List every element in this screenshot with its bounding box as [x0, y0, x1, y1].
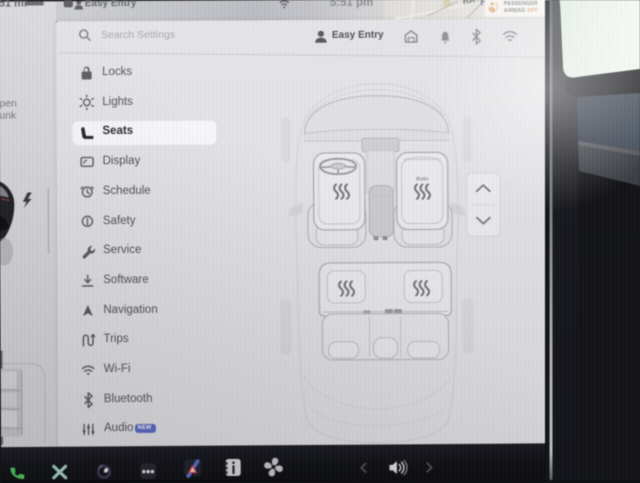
svg-text:Auto: Auto — [416, 176, 429, 182]
